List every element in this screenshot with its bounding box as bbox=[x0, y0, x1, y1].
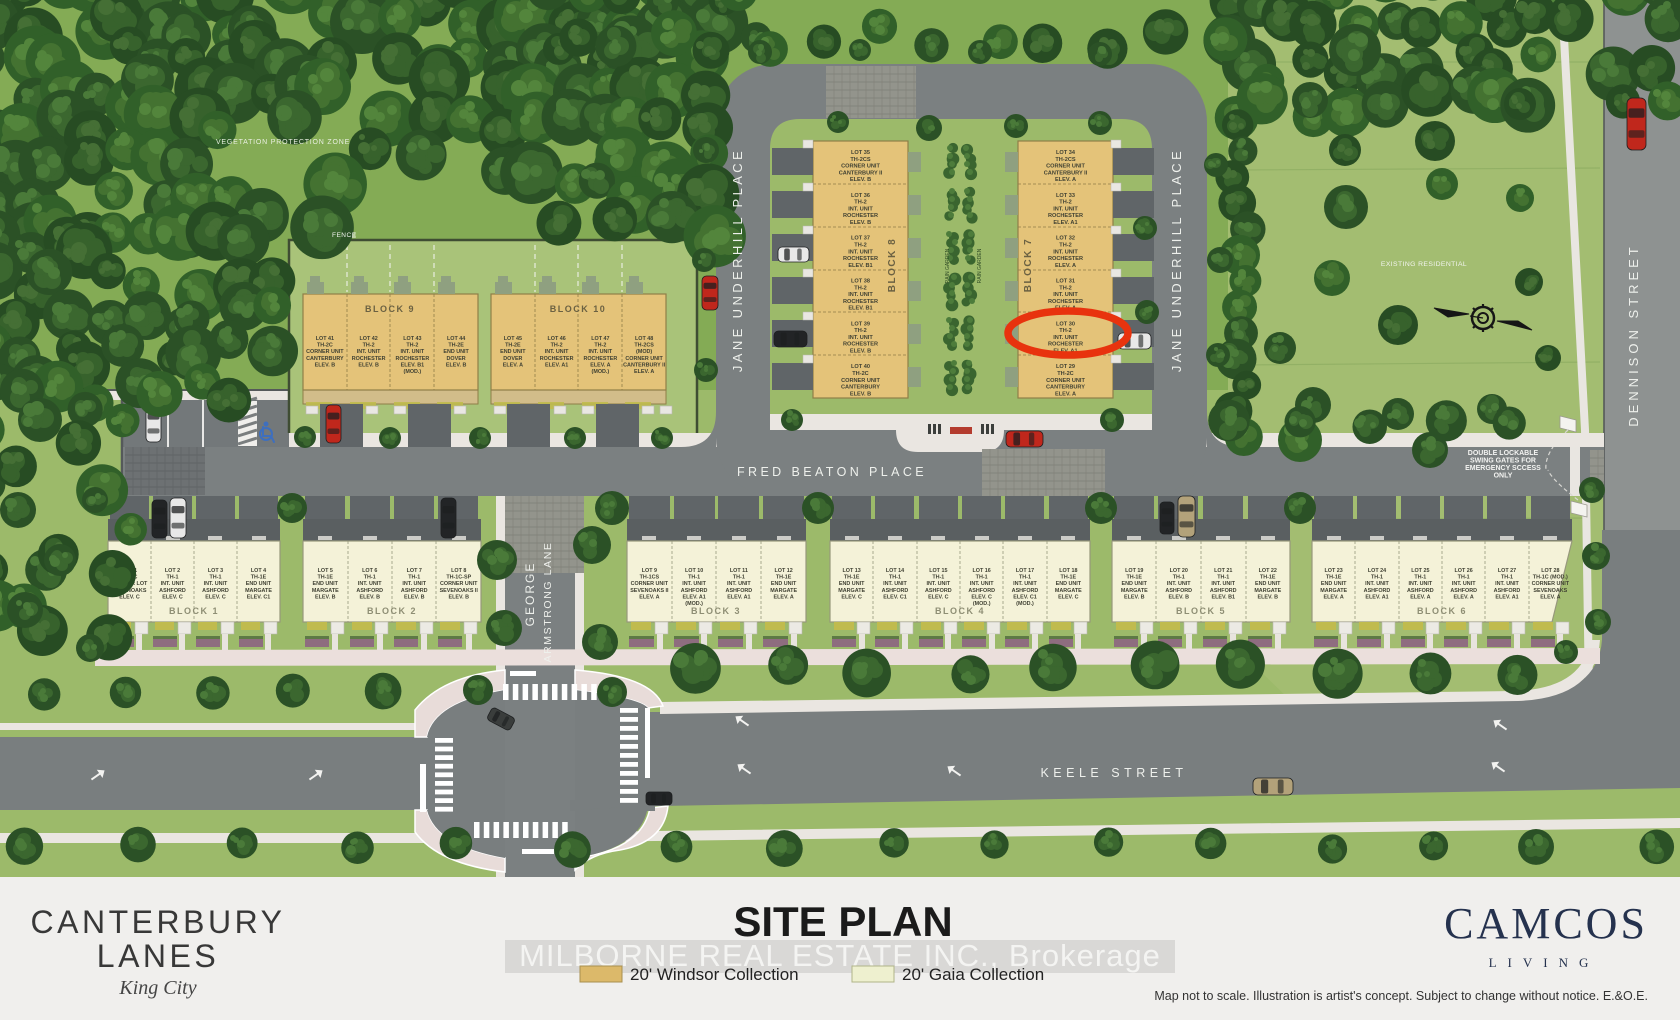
svg-text:Map not to scale. Illustration: Map not to scale. Illustration is artist… bbox=[1154, 989, 1648, 1003]
svg-text:EXISTING RESIDENTIAL: EXISTING RESIDENTIAL bbox=[1381, 261, 1467, 268]
svg-text:BLOCK 5: BLOCK 5 bbox=[1176, 606, 1226, 616]
svg-text:BLOCK 1: BLOCK 1 bbox=[169, 606, 219, 616]
svg-text:GEORGE: GEORGE bbox=[523, 562, 537, 627]
svg-text:RAIN GARDEN: RAIN GARDEN bbox=[945, 248, 951, 283]
svg-text:RAIN GARDEN: RAIN GARDEN bbox=[977, 248, 983, 283]
svg-text:ARMSTRONG LANE: ARMSTRONG LANE bbox=[542, 542, 554, 663]
svg-text:KEELE STREET: KEELE STREET bbox=[1040, 766, 1187, 780]
svg-text:20' Windsor Collection: 20' Windsor Collection bbox=[630, 965, 799, 984]
svg-text:JANE UNDERHILL PLACE: JANE UNDERHILL PLACE bbox=[1169, 148, 1184, 372]
svg-text:CANTERBURY: CANTERBURY bbox=[31, 904, 286, 940]
svg-text:BLOCK 7: BLOCK 7 bbox=[1023, 238, 1034, 292]
svg-text:LANES: LANES bbox=[97, 938, 219, 974]
svg-text:BLOCK 10: BLOCK 10 bbox=[550, 304, 607, 314]
svg-text:BLOCK 2: BLOCK 2 bbox=[367, 606, 417, 616]
svg-text:LIVING: LIVING bbox=[1489, 955, 1600, 970]
svg-text:King City: King City bbox=[118, 977, 196, 999]
svg-text:BLOCK 8: BLOCK 8 bbox=[887, 238, 898, 292]
svg-text:CAMCOS: CAMCOS bbox=[1444, 899, 1648, 948]
svg-text:BLOCK 3: BLOCK 3 bbox=[691, 606, 741, 616]
svg-text:BLOCK 6: BLOCK 6 bbox=[1417, 606, 1467, 616]
svg-text:FENCE: FENCE bbox=[332, 232, 357, 239]
svg-text:BLOCK 4: BLOCK 4 bbox=[935, 606, 985, 616]
svg-text:20' Gaia Collection: 20' Gaia Collection bbox=[902, 965, 1044, 984]
svg-text:FRED BEATON PLACE: FRED BEATON PLACE bbox=[737, 465, 927, 479]
svg-text:BLOCK 9: BLOCK 9 bbox=[365, 304, 415, 314]
svg-text:JANE UNDERHILL PLACE: JANE UNDERHILL PLACE bbox=[730, 148, 745, 372]
svg-text:VEGETATION PROTECTION ZONE: VEGETATION PROTECTION ZONE bbox=[216, 139, 350, 146]
svg-text:DENNISON STREET: DENNISON STREET bbox=[1626, 243, 1641, 427]
